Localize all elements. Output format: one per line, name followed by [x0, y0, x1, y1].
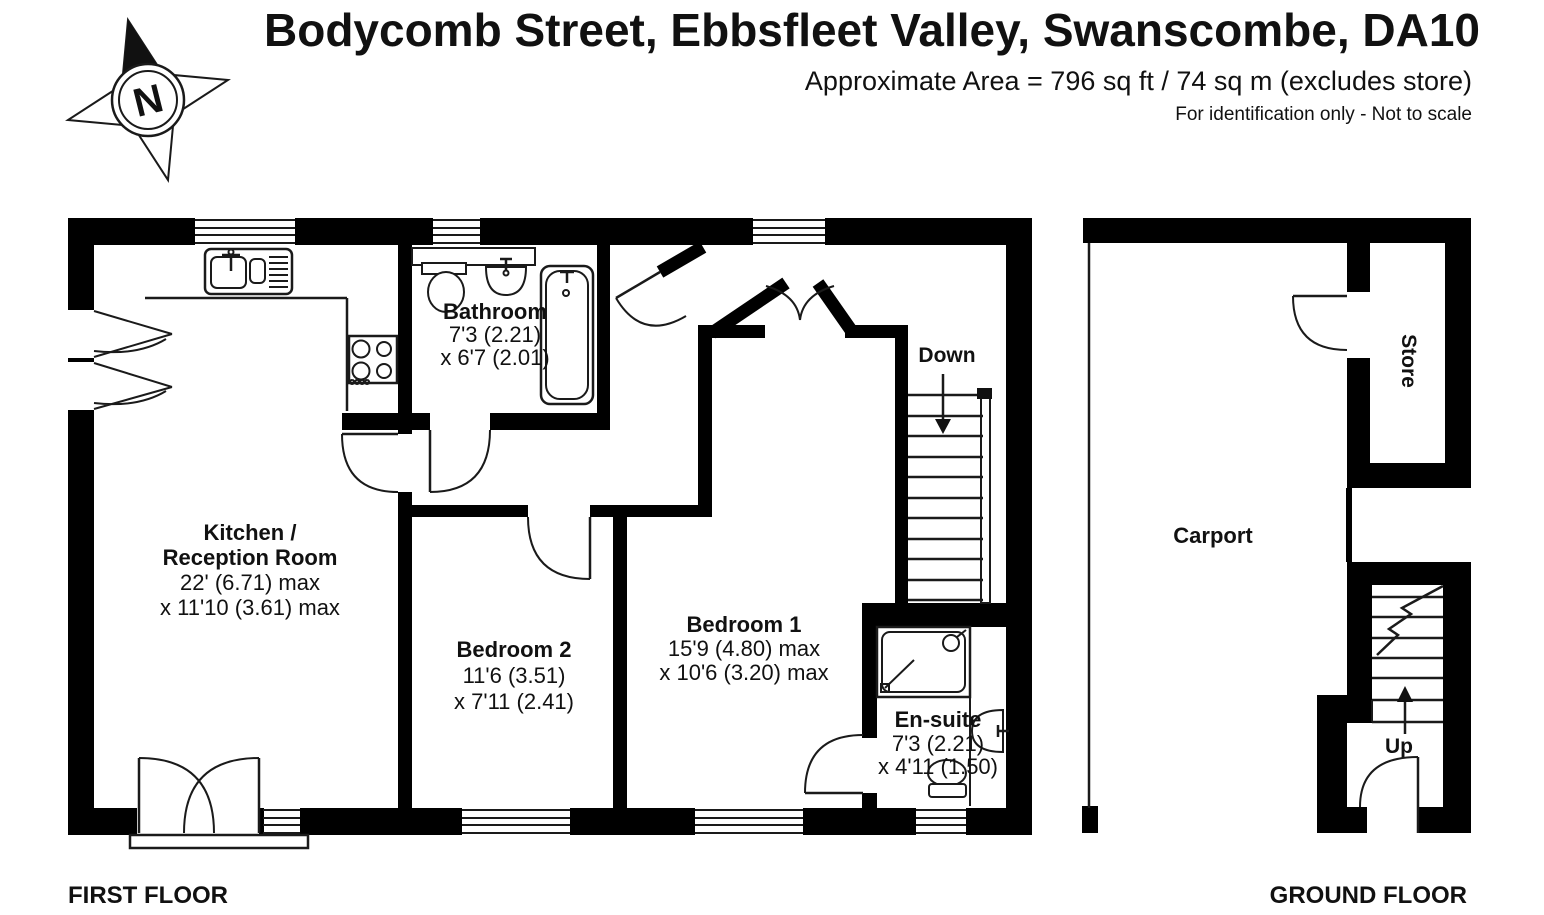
svg-text:x 7'11 (2.41): x 7'11 (2.41): [454, 689, 574, 714]
stairs-down: [908, 374, 992, 603]
ground-floor-labels: Carport Store Up: [1173, 334, 1420, 758]
ground-floor-caption: GROUND FLOOR: [1270, 882, 1467, 909]
landing-window: [753, 220, 825, 243]
bathroom-label: Bathroom 7'3 (2.21) x 6'7 (2.01): [440, 299, 549, 370]
worktop-edge: [145, 298, 347, 411]
kitchen-door: [342, 434, 398, 492]
down-label: Down: [918, 344, 975, 367]
french-doors: [130, 758, 308, 848]
store-label: Store: [1397, 334, 1420, 388]
landing-cupboard-door: [616, 272, 686, 326]
header-block: Bodycomb Street, Ebbsfleet Valley, Swans…: [264, 4, 1480, 125]
north-compass-icon: N: [68, 20, 228, 180]
svg-text:Reception Room: Reception Room: [163, 545, 338, 570]
svg-text:15'9 (4.80) max: 15'9 (4.80) max: [668, 636, 820, 661]
hob: [349, 336, 397, 384]
disclaimer-text: For identification only - Not to scale: [1175, 104, 1472, 125]
up-label: Up: [1385, 735, 1413, 758]
kitchen-sink: [205, 249, 292, 294]
floor-plan: Bodycomb Street, Ebbsfleet Valley, Swans…: [0, 0, 1544, 915]
bathroom-door: [430, 430, 490, 492]
splayed-window-reveal: [94, 363, 172, 409]
kitchen-label: Kitchen / Reception Room 22' (6.71) max …: [160, 520, 340, 620]
svg-text:7'3 (2.21): 7'3 (2.21): [449, 322, 541, 347]
stairs-up: [1372, 586, 1443, 734]
bedroom1-label: Bedroom 1 15'9 (4.80) max x 10'6 (3.20) …: [659, 612, 828, 685]
svg-text:7'3 (2.21): 7'3 (2.21): [892, 731, 984, 756]
ensuite-label: En-suite 7'3 (2.21) x 4'11 (1.50): [878, 707, 998, 779]
bathroom-window: [433, 220, 480, 243]
bedroom2-door: [528, 517, 590, 579]
splayed-window-reveal: [94, 311, 172, 357]
ensuite-window: [916, 810, 966, 833]
bedroom1-window: [695, 810, 803, 833]
newel-post: [977, 388, 992, 399]
kitchen-rear-window: [263, 810, 300, 833]
ensuite-door: [805, 735, 863, 793]
svg-text:Kitchen /: Kitchen /: [204, 520, 297, 545]
bathtub: [541, 266, 593, 404]
bedroom2-window: [462, 810, 570, 833]
angled-wall: [660, 247, 703, 272]
bedroom2-label: Bedroom 2 11'6 (3.51) x 7'11 (2.41): [454, 637, 574, 714]
svg-text:x 10'6 (3.20) max: x 10'6 (3.20) max: [659, 660, 828, 685]
first-floor-plan: Kitchen / Reception Room 22' (6.71) max …: [68, 218, 1032, 909]
carport-label: Carport: [1173, 523, 1253, 548]
svg-text:11'6 (3.51): 11'6 (3.51): [463, 663, 566, 688]
store-door: [1293, 296, 1347, 350]
svg-text:En-suite: En-suite: [895, 707, 982, 732]
first-floor-caption: FIRST FLOOR: [68, 882, 228, 909]
up-arrow-head: [1397, 686, 1413, 702]
svg-text:Bedroom 1: Bedroom 1: [687, 612, 802, 637]
svg-text:Bathroom: Bathroom: [443, 299, 547, 324]
svg-text:22' (6.71) max: 22' (6.71) max: [180, 570, 320, 595]
approximate-area-text: Approximate Area = 796 sq ft / 74 sq m (…: [805, 66, 1472, 96]
floor-plan-page: { "header": { "title": "Bodycomb Street,…: [0, 0, 1544, 915]
page-title: Bodycomb Street, Ebbsfleet Valley, Swans…: [264, 4, 1480, 56]
svg-text:x 6'7 (2.01): x 6'7 (2.01): [440, 345, 549, 370]
svg-text:x 11'10 (3.61) max: x 11'10 (3.61) max: [160, 595, 340, 620]
door-step: [130, 835, 308, 848]
shower: [877, 627, 970, 697]
entrance-door: [1360, 757, 1418, 833]
kitchen-window: [195, 220, 295, 243]
kitchen-fixtures: [145, 249, 397, 411]
down-arrow-head: [935, 419, 951, 434]
ground-floor-plan: Carport Store Up GROUND FLOOR: [1082, 218, 1471, 909]
svg-text:Bedroom 2: Bedroom 2: [457, 637, 572, 662]
svg-text:x 4'11 (1.50): x 4'11 (1.50): [878, 754, 998, 779]
